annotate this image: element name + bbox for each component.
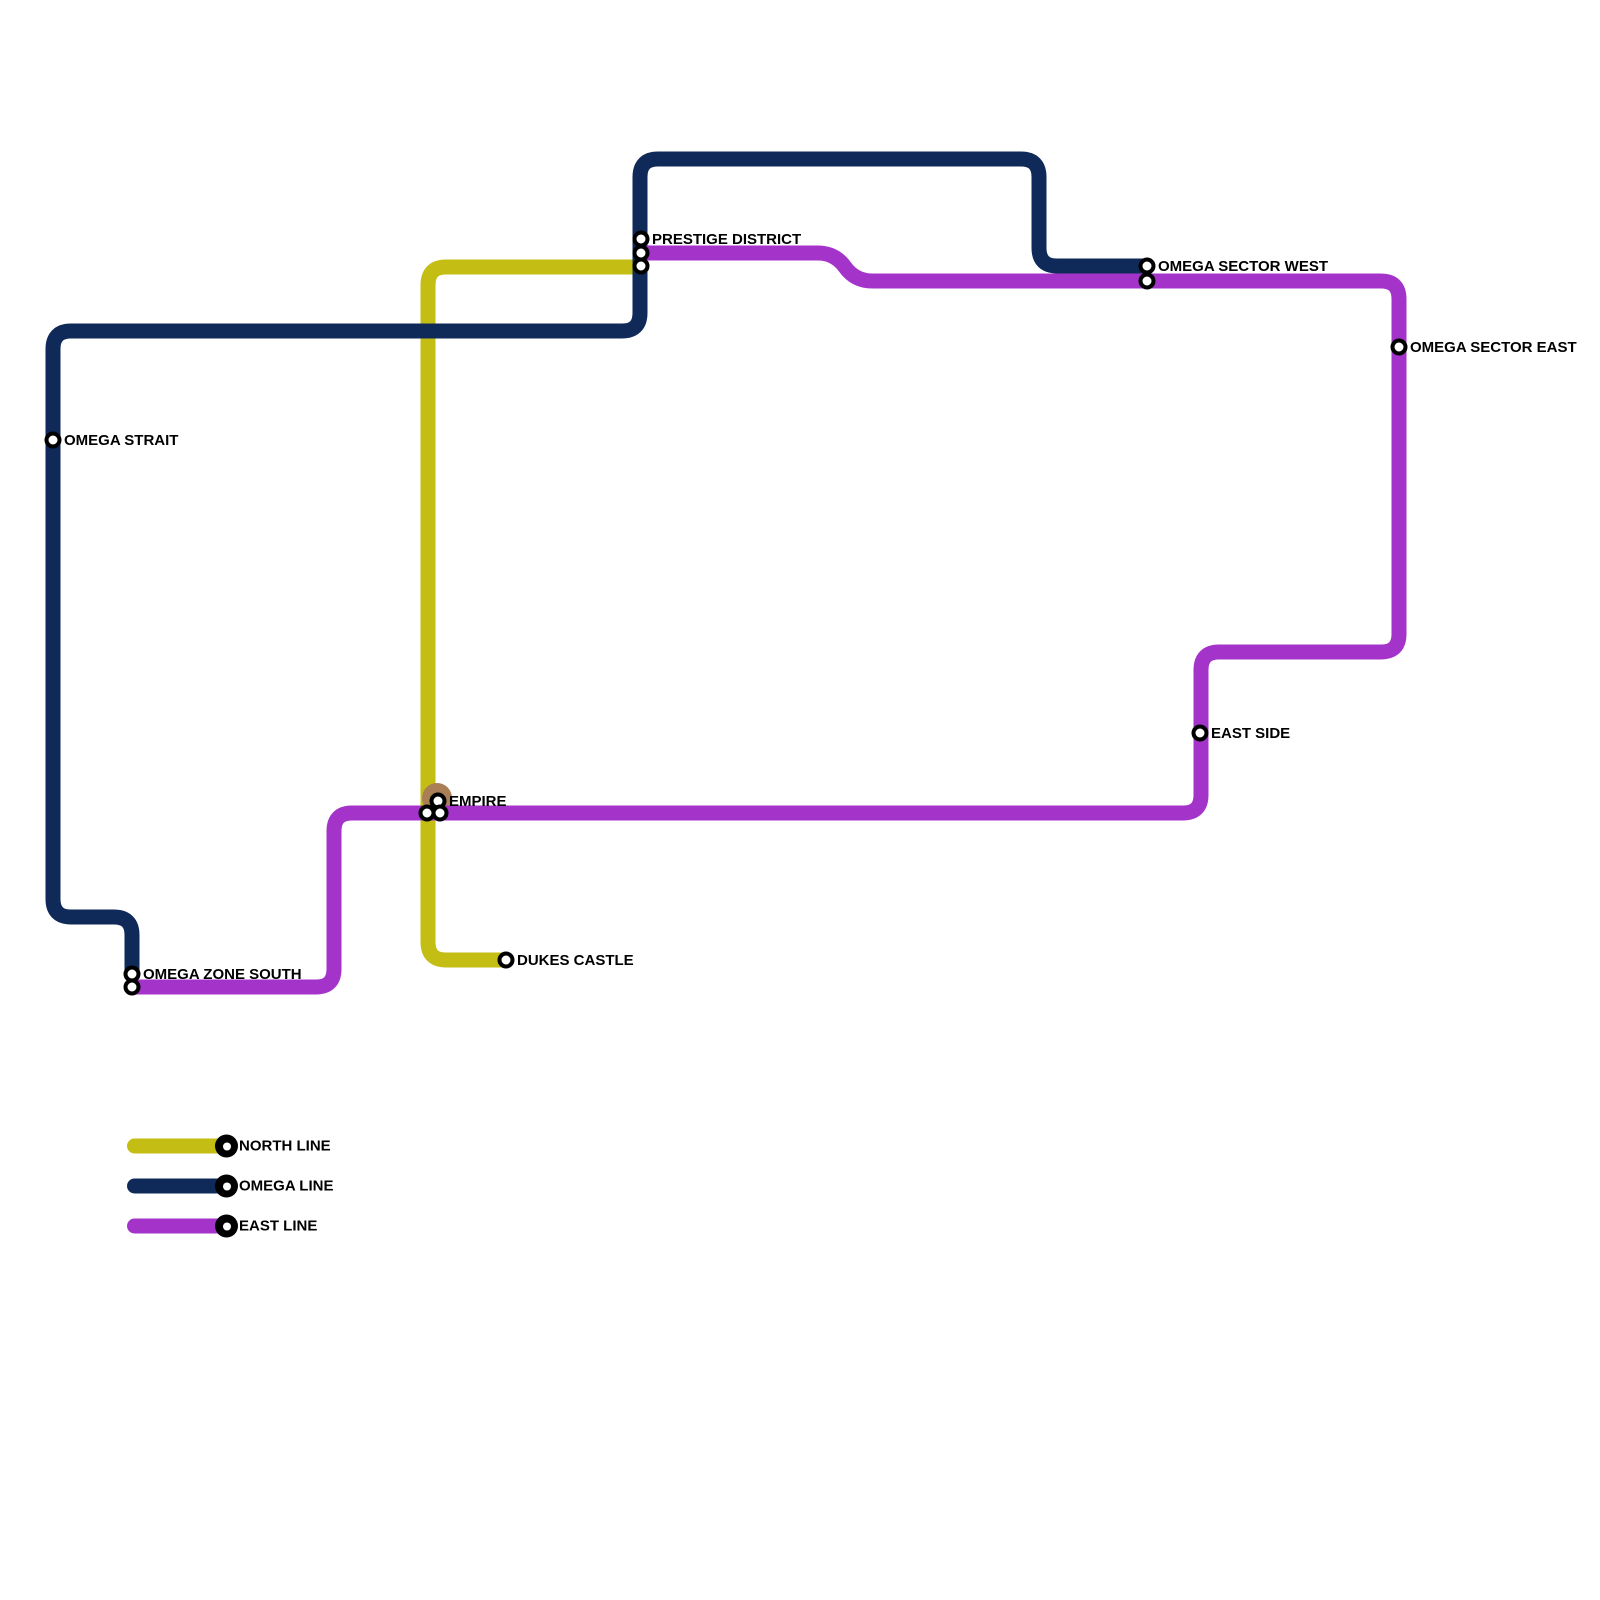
station-label: OMEGA ZONE SOUTH	[143, 966, 302, 983]
station-marker-hole	[223, 1182, 231, 1190]
station-marker-icon	[215, 1215, 238, 1238]
station-label: OMEGA STRAIT	[64, 432, 178, 449]
legend-label-north-line: NORTH LINE	[239, 1138, 331, 1155]
station-label: EMPIRE	[449, 793, 507, 810]
transit-map: PRESTIGE DISTRICTOMEGA SECTOR WESTOMEGA …	[0, 0, 1600, 1600]
legend-item-east-line: EAST LINE	[127, 1214, 407, 1238]
legend-label-omega-line: OMEGA LINE	[239, 1178, 333, 1195]
transit-map-svg: PRESTIGE DISTRICTOMEGA SECTOR WESTOMEGA …	[0, 0, 1600, 1600]
omega-line-swatch	[127, 1179, 227, 1194]
legend-item-omega-line: OMEGA LINE	[127, 1174, 407, 1198]
station-label: PRESTIGE DISTRICT	[652, 231, 801, 248]
station-marker-icon	[47, 434, 60, 447]
north-line-path	[428, 267, 641, 960]
station-marker-icon	[1141, 275, 1154, 288]
station-label: OMEGA SECTOR EAST	[1410, 339, 1577, 356]
station-marker-icon	[1393, 341, 1406, 354]
station-marker-hole	[223, 1142, 231, 1150]
north-line-swatch	[127, 1139, 227, 1154]
station-marker-icon	[635, 233, 648, 246]
station-omega-sector-east: OMEGA SECTOR EAST	[1393, 339, 1577, 356]
legend: NORTH LINE OMEGA LINE EAST LINE	[127, 1134, 407, 1254]
east-line-swatch	[127, 1219, 227, 1234]
station-label: DUKES CASTLE	[517, 952, 634, 969]
station-marker-icon	[1194, 727, 1207, 740]
station-omega-strait: OMEGA STRAIT	[47, 432, 179, 449]
station-label: EAST SIDE	[1211, 725, 1290, 742]
station-marker-icon	[215, 1135, 238, 1158]
station-dukes-castle: DUKES CASTLE	[500, 952, 634, 969]
station-marker-hole	[223, 1222, 231, 1230]
station-marker-icon	[215, 1175, 238, 1198]
legend-label-east-line: EAST LINE	[239, 1218, 317, 1235]
station-marker-icon	[500, 954, 513, 967]
station-marker-icon	[126, 981, 139, 994]
station-marker-icon	[635, 260, 648, 273]
station-label: OMEGA SECTOR WEST	[1158, 258, 1328, 275]
station-marker-icon	[1141, 260, 1154, 273]
east-line-path	[132, 253, 1399, 987]
station-marker-icon	[434, 807, 447, 820]
legend-item-north-line: NORTH LINE	[127, 1134, 407, 1158]
